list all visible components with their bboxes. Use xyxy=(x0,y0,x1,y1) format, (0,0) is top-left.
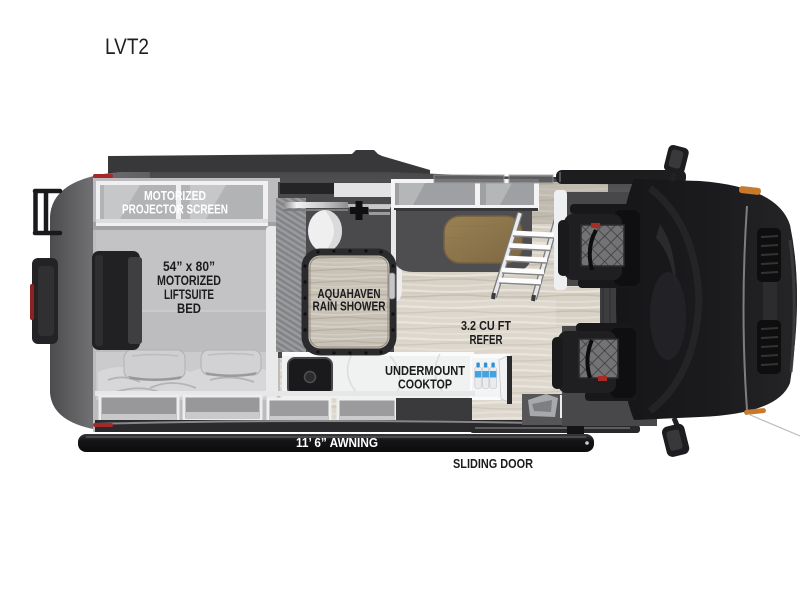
svg-text:54” x 80”: 54” x 80” xyxy=(163,259,215,274)
svg-text:MOTORIZED: MOTORIZED xyxy=(144,189,206,203)
svg-text:SLIDING DOOR: SLIDING DOOR xyxy=(453,456,534,471)
svg-text:REFER: REFER xyxy=(470,332,503,347)
svg-text:LIFTSUITE: LIFTSUITE xyxy=(164,287,214,302)
svg-text:11’ 6” AWNING: 11’ 6” AWNING xyxy=(296,436,378,450)
svg-text:LVT2: LVT2 xyxy=(105,34,149,59)
svg-text:BED: BED xyxy=(177,301,201,316)
svg-text:PROJECTOR SCREEN: PROJECTOR SCREEN xyxy=(122,203,228,217)
svg-text:MOTORIZED: MOTORIZED xyxy=(157,273,221,288)
svg-text:COOKTOP: COOKTOP xyxy=(398,377,452,392)
svg-text:3.2 CU FT: 3.2 CU FT xyxy=(461,318,511,333)
svg-text:RAIN SHOWER: RAIN SHOWER xyxy=(313,300,386,314)
